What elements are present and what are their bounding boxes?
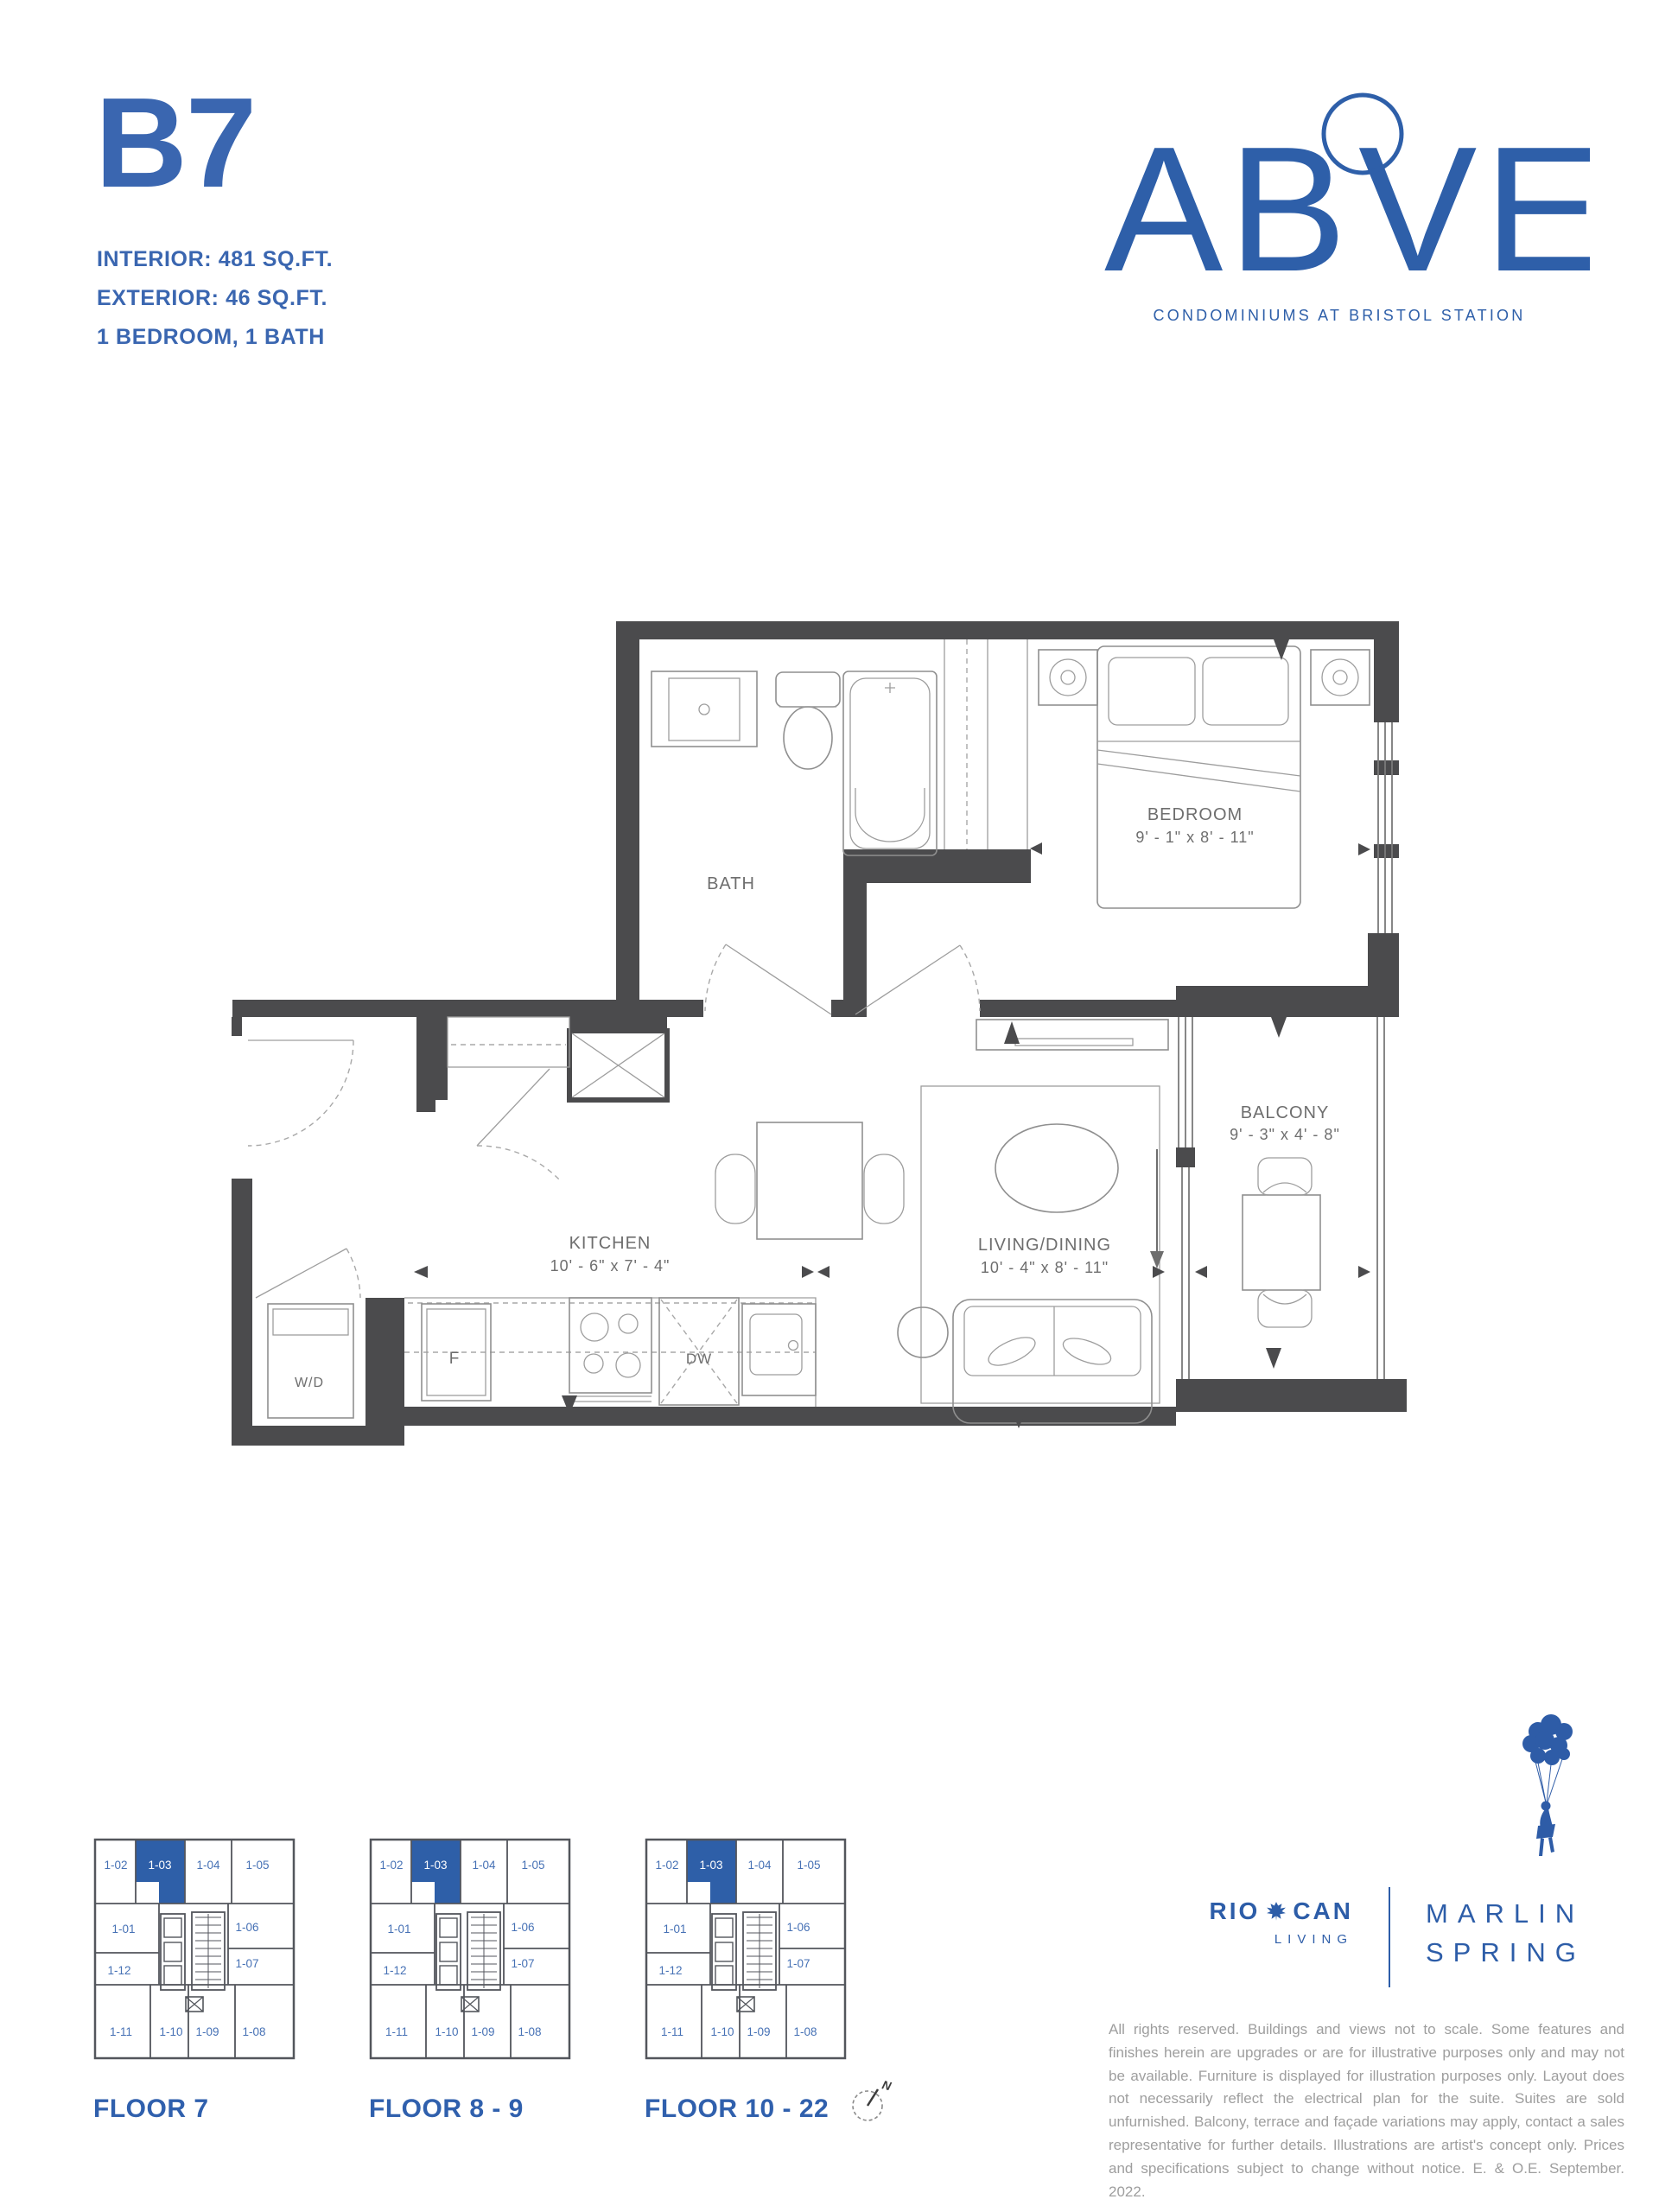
plate-unit-1-02: 1-02: [104, 1859, 127, 1872]
plate-unit-1-06: 1-06: [235, 1921, 258, 1934]
bedroom-closet: [944, 639, 1027, 849]
bed: [1097, 646, 1300, 908]
plate-unit-1-08: 1-08: [793, 2025, 817, 2038]
dw-label: DW: [686, 1351, 712, 1367]
plate-unit-1-11: 1-11: [661, 2025, 683, 2038]
plate-unit-1-11: 1-11: [110, 2025, 132, 2038]
plate-highlighted-unit: [687, 1840, 736, 1904]
floor-label-8-9: FLOOR 8 - 9: [369, 2094, 524, 2124]
nightstand-left: [1039, 650, 1097, 705]
plan-walls: [232, 621, 1407, 1446]
kitchen-dims: 10' - 6" x 7' - 4": [550, 1257, 671, 1274]
nightstand-right: [1311, 650, 1370, 705]
kitchen-counter: [404, 1298, 816, 1407]
plate-unit-1-04: 1-04: [196, 1859, 220, 1872]
plate-unit-1-08: 1-08: [518, 2025, 541, 2038]
marlin-spring-logo: MARLIN SPRING: [1426, 1894, 1586, 1972]
sofa: [953, 1300, 1152, 1423]
unit-config: 1 BEDROOM, 1 BATH: [97, 318, 333, 357]
plate-unit-1-03: 1-03: [699, 1859, 722, 1872]
bath-label: BATH: [707, 874, 755, 893]
fridge-label: F: [449, 1350, 461, 1368]
floorplan-sheet: B7 INTERIOR: 481 SQ.FT. EXTERIOR: 46 SQ.…: [0, 0, 1659, 2212]
wd-label: W/D: [295, 1376, 324, 1390]
coffee-table: [995, 1124, 1118, 1212]
kitchen-sink: [742, 1304, 816, 1395]
living-dims: 10' - 4" x 8' - 11": [981, 1259, 1109, 1276]
plate-unit-1-11: 1-11: [385, 2025, 408, 2038]
legal-disclaimer: All rights reserved. Buildings and views…: [1109, 2018, 1624, 2203]
bedroom-label: BEDROOM: [1147, 805, 1243, 824]
riocan-rio: RIO: [1210, 1897, 1261, 1925]
riocan-living: LIVING: [1165, 1932, 1353, 1947]
living-label: LIVING/DINING: [978, 1236, 1111, 1255]
plate-highlighted-unit: [136, 1840, 185, 1904]
unit-exterior-sqft: EXTERIOR: 46 SQ.FT.: [97, 279, 333, 318]
stove: [569, 1298, 652, 1402]
bedroom-dims: 9' - 1" x 8' - 11": [1135, 829, 1254, 846]
plate-unit-1-01: 1-01: [111, 1923, 135, 1935]
plate-unit-1-07: 1-07: [511, 1957, 534, 1970]
plate-unit-1-01: 1-01: [387, 1923, 410, 1935]
floor-plate-8-9: 1-021-031-041-051-011-061-121-071-111-10…: [369, 1834, 571, 2063]
side-table: [898, 1307, 948, 1357]
riocan-living-logo: RIO CAN LIVING: [1165, 1897, 1353, 1947]
plate-unit-1-05: 1-05: [797, 1859, 820, 1872]
riocan-can: CAN: [1293, 1897, 1353, 1925]
floor-label-7: FLOOR 7: [93, 2094, 209, 2124]
compass-icon: N: [845, 2074, 906, 2134]
plate-unit-1-05: 1-05: [521, 1859, 544, 1872]
floor-plate-7: 1-021-031-041-051-011-061-121-071-111-10…: [93, 1834, 296, 2063]
brand-tagline: CONDOMINIUMS AT BRISTOL STATION: [1154, 307, 1526, 324]
unit-stats: INTERIOR: 481 SQ.FT. EXTERIOR: 46 SQ.FT.…: [97, 240, 333, 357]
balloon-girl-icon: [1514, 1711, 1588, 1866]
plate-unit-1-06: 1-06: [511, 1921, 534, 1934]
floor-plate-10-22: 1-021-031-041-051-011-061-121-071-111-10…: [645, 1834, 847, 2063]
kitchen-label: KITCHEN: [569, 1234, 652, 1253]
plate-unit-1-09: 1-09: [195, 2025, 219, 2038]
plate-unit-1-07: 1-07: [786, 1957, 810, 1970]
plate-unit-1-03: 1-03: [423, 1859, 447, 1872]
plate-highlighted-unit: [411, 1840, 461, 1904]
above-logo-ab: AB: [1104, 110, 1352, 308]
unit-name: B7: [95, 79, 255, 207]
unit-interior-sqft: INTERIOR: 481 SQ.FT.: [97, 240, 333, 279]
plan-markers: [414, 639, 1370, 1428]
washer-dryer: W/D: [256, 1249, 360, 1418]
plate-unit-1-03: 1-03: [148, 1859, 171, 1872]
plate-unit-1-12: 1-12: [107, 1964, 130, 1977]
plate-unit-1-02: 1-02: [379, 1859, 403, 1872]
dining-table: [715, 1122, 904, 1239]
plate-unit-1-09: 1-09: [471, 2025, 494, 2038]
above-logo-ve: VE: [1358, 110, 1590, 308]
above-logo: AB VE CONDOMINIUMS AT BRISTOL STATION: [1104, 73, 1590, 333]
main-floor-plan: W/D BATH: [232, 615, 1434, 1469]
plate-unit-1-02: 1-02: [655, 1859, 678, 1872]
balcony-dims: 9' - 3" x 4' - 8": [1230, 1126, 1340, 1143]
tv-console: [976, 1020, 1168, 1050]
bath-door: [705, 944, 831, 1014]
plate-unit-1-07: 1-07: [235, 1957, 258, 1970]
marlin-line1: MARLIN: [1426, 1894, 1586, 1933]
footer-logo-divider: [1389, 1887, 1390, 1987]
plate-unit-1-10: 1-10: [710, 2025, 734, 2038]
plate-unit-1-05: 1-05: [245, 1859, 269, 1872]
bath-sink: [652, 671, 757, 747]
floor-label-10-22: FLOOR 10 - 22: [645, 2094, 829, 2124]
plate-unit-1-01: 1-01: [663, 1923, 686, 1935]
balcony-label: BALCONY: [1241, 1103, 1330, 1122]
entry-door: [248, 1040, 353, 1146]
toilet-fixture: [776, 672, 840, 769]
bedroom-door: [855, 945, 980, 1014]
bathtub-fixture: [843, 671, 937, 855]
marlin-line2: SPRING: [1426, 1933, 1586, 1972]
balcony-door-arrow: [1150, 1149, 1164, 1268]
plate-unit-1-06: 1-06: [786, 1921, 810, 1934]
plate-unit-1-04: 1-04: [747, 1859, 772, 1872]
plate-unit-1-12: 1-12: [383, 1964, 406, 1977]
maple-leaf-icon: [1266, 1901, 1287, 1922]
balcony-furniture: [1243, 1158, 1320, 1327]
plate-unit-1-12: 1-12: [658, 1964, 682, 1977]
plate-unit-1-10: 1-10: [435, 2025, 458, 2038]
plate-unit-1-10: 1-10: [159, 2025, 182, 2038]
entry-closet: [448, 1017, 569, 1180]
compass-n-label: N: [880, 2077, 893, 2093]
shaft-box: [569, 1031, 667, 1100]
dishwasher: DW: [659, 1298, 739, 1405]
plate-unit-1-08: 1-08: [242, 2025, 265, 2038]
plate-unit-1-09: 1-09: [747, 2025, 770, 2038]
plate-unit-1-04: 1-04: [472, 1859, 496, 1872]
